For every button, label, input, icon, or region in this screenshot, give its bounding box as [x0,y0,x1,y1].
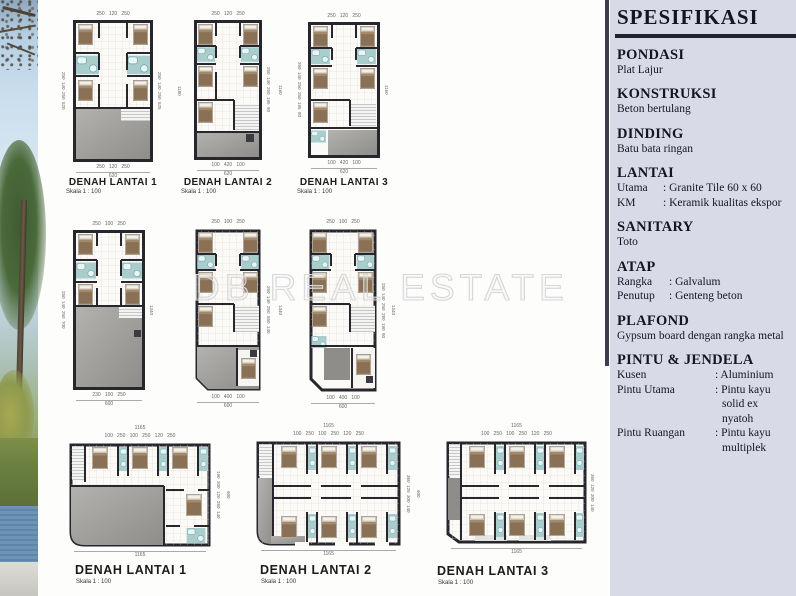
spec-key: Penutup [617,289,669,304]
section-heading: SANITARY [617,219,790,235]
panel-accent-rule [605,0,609,366]
shore-strip [0,562,38,596]
dim-bottom: 100 400 100 [194,394,262,400]
dim-left: 250 140 250 520 [61,20,66,162]
plan-scale: Skala 1 : 100 [76,579,111,585]
dim-top: 100 250 100 250 120 250 [255,431,402,437]
spec-key: Kusen [617,368,715,383]
spec-value-multiline: : Pintu kayu solid ex nyatoh [715,383,790,427]
plan-scale: Skala 1 : 100 [66,189,101,195]
shaft [246,134,254,142]
plan-label: DENAH LANTAI 3 [437,564,607,578]
spec-value-multiline: : Pintu kayu multiplek [715,426,771,455]
dim-total: 600 [308,404,378,410]
grass [0,438,38,506]
spec-section-lantai: LANTAI Utama: Granite Tile 60 x 60 KM: K… [617,165,790,210]
section-heading: ATAP [617,259,790,275]
spec-key: KM [617,196,663,211]
garage-area [76,306,142,387]
dim-bottom: 100 420 100 [194,162,262,168]
section-heading: PONDASI [617,47,790,63]
plan-label: DENAH LANTAI 1 [53,177,173,188]
dim-side-total: 1340 [149,230,154,390]
floor-plan-2-tall [194,228,262,392]
dim-side-total: 900 [226,442,231,548]
dim-bottom: 100 400 100 [308,395,378,401]
dim-top: 250 100 250 [308,219,378,225]
dim-total: 600 [73,401,145,407]
plan-label: DENAH LANTAI 1 [75,563,245,577]
dim-top: 250 100 250 [73,221,145,227]
dim-total: 620 [308,169,380,175]
dim-side-total: 1180 [177,20,182,162]
spec-value: : Genteng beton [669,289,742,304]
spec-value: : Galvalum [669,275,720,290]
dim-side-total: 900 [416,440,421,547]
spec-value-line2: solid ex nyatoh [715,397,790,426]
spec-value: : Pintu kayu [715,383,790,398]
dim-right: 250 140 250 280 190 80 [381,228,386,393]
section-heading: DINDING [617,126,790,142]
dim-side-total: 1160 [384,22,389,158]
spec-value-line2: multiplek [715,441,771,456]
nature-photo-strip [0,0,38,596]
dim-top: 100 250 100 250 120 250 [68,433,212,439]
spec-value: : Keramik kualitas ekspor [663,196,781,211]
dim-right: 250 140 250 195 80 [266,20,271,160]
dim-right: 250 140 250 525 [157,20,162,162]
floor-plan-2-wide [255,440,402,547]
section-value: Batu bata ringan [617,142,693,157]
shaft [366,376,373,383]
section-heading: LANTAI [617,165,790,181]
dim-right: 250 140 250 550 140 [266,228,271,392]
dim-right: 190 300 120 250 140 [216,442,221,548]
dim-top-total: 1165 [445,423,588,429]
dim-top: 250 120 250 [73,11,153,17]
brochure-page: 250 120 250 250 120 250 620 250 140 250 … [0,0,796,596]
dim-right: 360 120 300 140 [590,440,595,545]
dim-top: 250 120 250 [308,13,380,19]
dim-bottom: 1165 [445,549,588,555]
floor-plan-1-wide [68,442,212,548]
spec-key: Pintu Ruangan [617,426,715,455]
floor-plan-1-tall [73,230,145,390]
dim-bottom: 100 420 100 [308,160,380,166]
section-value: Plat Lajur [617,63,663,78]
carport-area [71,486,164,545]
dim-left: 250 140 250 250 195 80 [297,22,302,158]
spec-section-konstruksi: KONSTRUKSI Beton bertulang [617,86,790,117]
specification-panel: SPESIFIKASI PONDASI Plat Lajur KONSTRUKS… [610,0,796,596]
dim-side-total: 1160 [278,20,283,160]
section-heading: KONSTRUKSI [617,86,790,102]
side-concrete [448,478,461,520]
dim-bottom: 1165 [255,551,402,557]
spec-value: : Pintu kayu [715,426,771,441]
dim-top-total: 1165 [68,425,212,431]
spec-value: : Aluminium [715,368,773,383]
spec-section-sanitary: SANITARY Toto [617,219,790,250]
spec-section-atap: ATAP Rangka: Galvalum Penutup: Genteng b… [617,259,790,304]
section-value: Beton bertulang [617,102,691,117]
section-heading: PLAFOND [617,313,790,329]
plan-scale: Skala 1 : 100 [181,189,216,195]
spec-section-pondasi: PONDASI Plat Lajur [617,47,790,78]
section-heading: PINTU & JENDELA [617,352,790,368]
plan-scale: Skala 1 : 100 [297,189,332,195]
spec-section-plafond: PLAFOND Gypsum board dengan rangka metal [617,313,790,344]
spec-section-pintu-jendela: PINTU & JENDELA Kusen: Aluminium Pintu U… [617,352,790,455]
shaft [134,330,141,337]
title-underline [615,34,796,38]
dim-top-total: 1165 [255,423,402,429]
floor-plan-1-small [73,20,153,162]
spec-title: SPESIFIKASI [617,5,790,30]
concrete-area [328,130,377,155]
side-concrete [258,478,273,544]
spec-key: Utama [617,181,663,196]
dim-bottom: 250 120 250 [73,164,153,170]
spec-key: Rangka [617,275,669,290]
section-value: Toto [617,235,638,250]
dim-right: 360 120 300 140 [406,440,411,547]
dim-top: 250 120 250 [194,11,262,17]
dim-total: 600 [194,403,262,409]
dim-top: 250 100 250 [194,219,262,225]
dim-top: 100 250 100 250 120 250 [445,431,588,437]
floor-plan-3-tall [308,228,378,393]
dim-side-total: 1340 [278,228,283,392]
water [0,506,38,562]
spec-key: Pintu Utama [617,383,715,427]
dim-left: 250 140 250 700 [61,230,66,390]
dim-bottom: 1165 [68,552,212,558]
floor-plan-3-wide [445,440,588,545]
plan-scale: Skala 1 : 100 [261,579,296,585]
plan-scale: Skala 1 : 100 [438,580,473,586]
dim-bottom: 230 100 250 [73,392,145,398]
plan-label: DENAH LANTAI 2 [168,177,288,188]
spec-value: : Granite Tile 60 x 60 [663,181,762,196]
shaft [250,350,257,357]
plan-label: DENAH LANTAI 3 [284,177,404,188]
dim-side-total: 1340 [391,228,396,393]
plan-label: DENAH LANTAI 2 [260,563,430,577]
floor-plan-3-small [308,22,380,158]
spec-section-dinding: DINDING Batu bata ringan [617,126,790,157]
floor-plan-2-small [194,20,262,160]
concrete-pad [324,348,350,380]
section-value: Gypsum board dengan rangka metal [617,329,784,344]
